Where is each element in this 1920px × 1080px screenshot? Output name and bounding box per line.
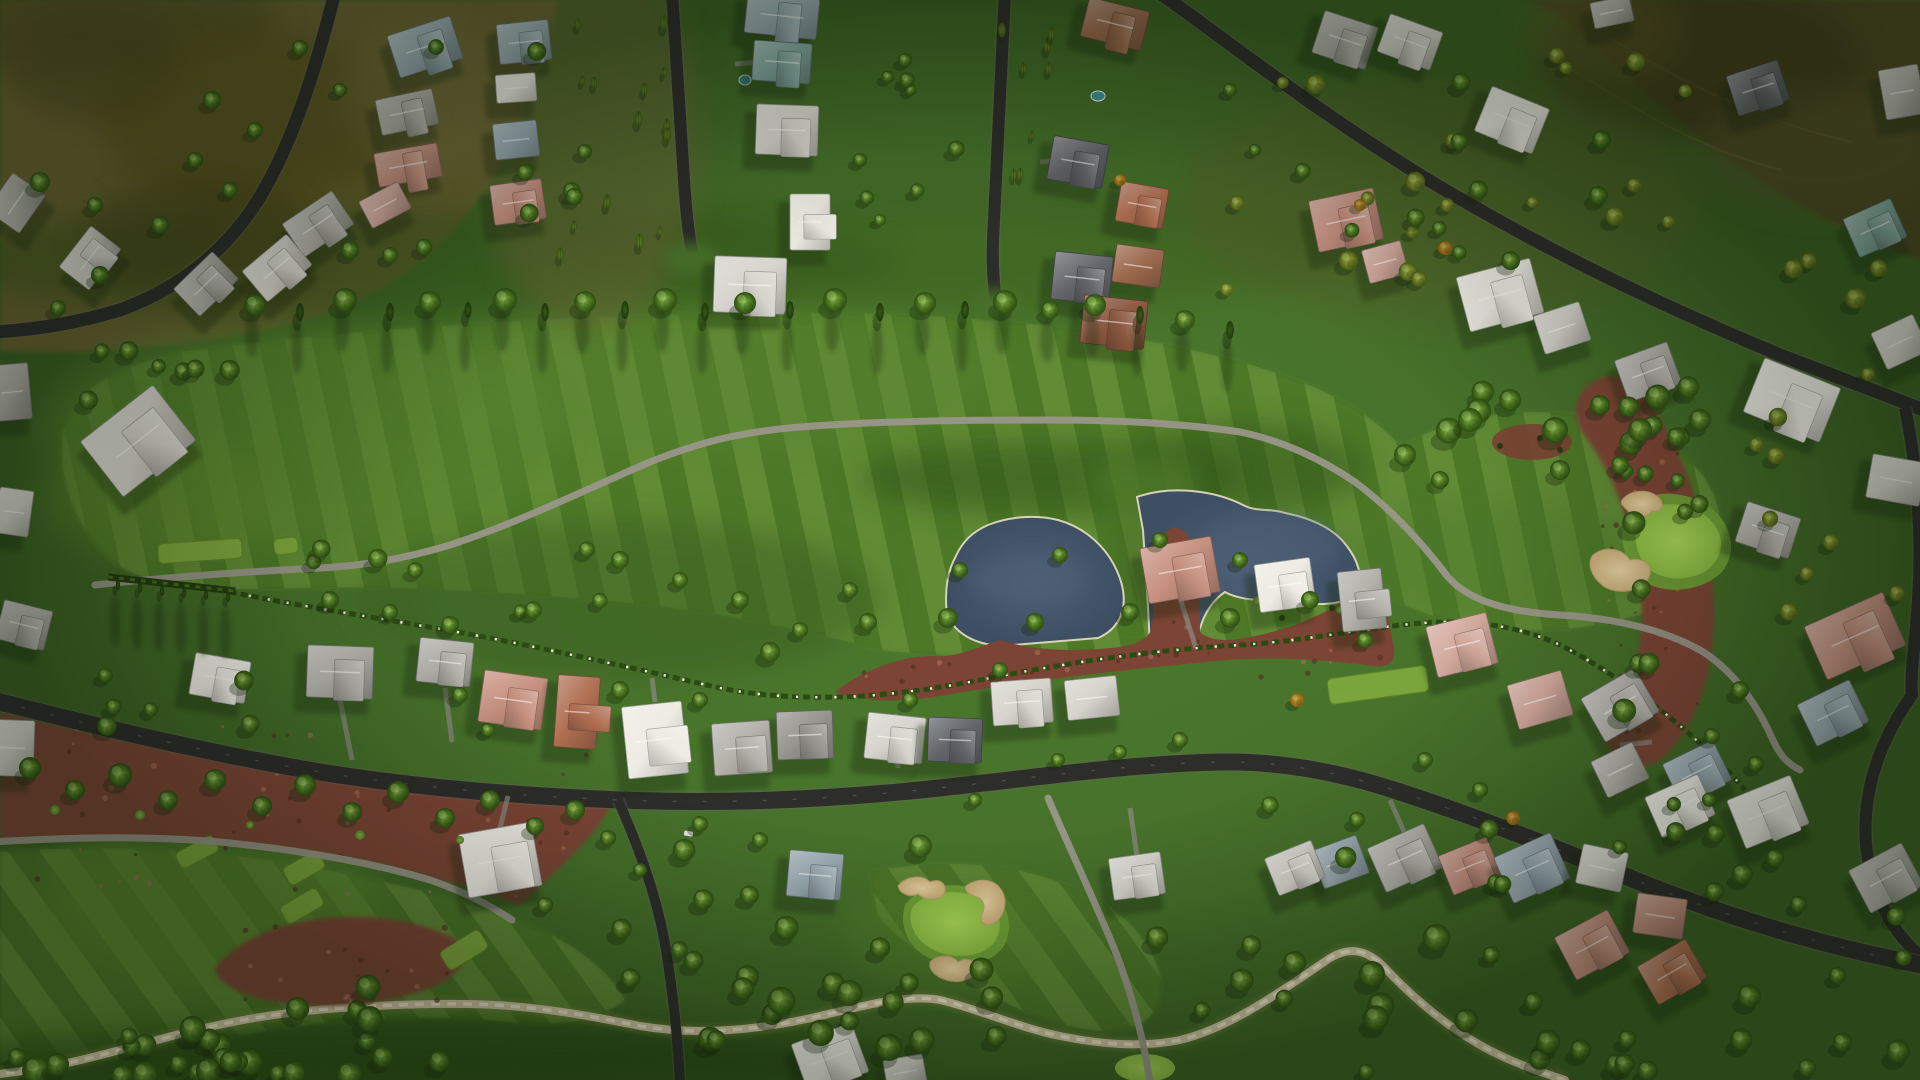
canopy-highlight — [1890, 1042, 1899, 1051]
house-wing — [781, 118, 811, 157]
canopy-shade — [228, 369, 237, 378]
canopy-highlight — [1803, 254, 1810, 261]
canopy-highlight — [1342, 253, 1350, 261]
mulch-texture-dot — [278, 977, 283, 982]
mulch-texture-dot — [67, 749, 72, 754]
shrub — [135, 810, 145, 820]
canopy-highlight — [161, 793, 169, 801]
canopy-highlight — [337, 291, 347, 301]
canopy-highlight — [1551, 49, 1557, 55]
canopy-highlight — [1640, 1063, 1648, 1071]
canopy-highlight — [345, 805, 353, 813]
shrub — [355, 830, 365, 840]
tree-canopy — [138, 583, 142, 593]
house-wing — [1016, 689, 1044, 728]
canopy-highlight — [951, 143, 958, 150]
mulch-texture-dot — [1377, 655, 1383, 661]
canopy-shade — [487, 729, 493, 735]
canopy-shade — [1619, 846, 1626, 853]
tree-canopy — [182, 588, 186, 598]
canopy-highlight — [873, 940, 881, 948]
canopy-highlight — [673, 943, 680, 950]
canopy-shade — [105, 725, 114, 734]
canopy-shade — [1229, 89, 1235, 95]
mulch-texture-dot — [1065, 667, 1070, 672]
canopy-shade — [1867, 373, 1873, 379]
mulch-texture-dot — [434, 997, 440, 1003]
canopy-shade — [1508, 399, 1518, 409]
mulch-texture-dot — [1613, 522, 1619, 528]
roof-ridge — [0, 748, 25, 749]
canopy-shade — [887, 1046, 899, 1058]
mulch-texture-dot — [441, 930, 444, 933]
canopy-highlight — [100, 719, 108, 727]
canopy-highlight — [1546, 420, 1556, 430]
canopy-highlight — [1286, 954, 1295, 963]
canopy-highlight — [1626, 514, 1635, 523]
canopy-highlight — [247, 297, 256, 306]
house-wing — [799, 724, 828, 760]
mulch-texture-dot — [243, 928, 249, 934]
canopy-shade — [381, 1055, 391, 1065]
canopy-highlight — [530, 44, 538, 52]
canopy-highlight — [1409, 211, 1416, 218]
canopy-highlight — [1629, 179, 1635, 185]
canopy-shade — [128, 1035, 136, 1043]
canopy-highlight — [89, 199, 95, 205]
canopy-shade — [414, 569, 421, 576]
canopy-highlight — [359, 978, 369, 988]
canopy-highlight — [614, 553, 621, 560]
canopy-shade — [1488, 828, 1497, 837]
canopy-shade — [1769, 518, 1776, 525]
canopy-highlight — [657, 291, 667, 301]
canopy-highlight — [1223, 611, 1231, 619]
canopy-highlight — [1116, 176, 1121, 181]
canopy-shade — [1896, 592, 1903, 599]
canopy-shade — [1226, 288, 1232, 294]
canopy-shade — [1559, 469, 1568, 478]
house — [915, 717, 983, 779]
canopy-shade — [351, 811, 360, 820]
canopy-shade — [1711, 735, 1718, 742]
canopy-shade — [28, 767, 38, 777]
canopy-highlight — [286, 1064, 295, 1073]
house-wing — [333, 659, 365, 701]
canopy-highlight — [1363, 964, 1374, 975]
house — [739, 39, 813, 100]
canopy-shade — [528, 212, 536, 220]
mulch-texture-dot — [1208, 652, 1210, 654]
house — [1851, 452, 1920, 523]
canopy-highlight — [1708, 884, 1716, 892]
canopy-highlight — [902, 74, 908, 80]
canopy-highlight — [886, 994, 894, 1002]
canopy-highlight — [879, 1037, 890, 1048]
canopy-highlight — [294, 42, 300, 48]
driveway — [652, 678, 655, 702]
canopy-highlight — [1832, 969, 1839, 976]
house-wing — [646, 725, 691, 766]
canopy-highlight — [1455, 75, 1463, 83]
mulch-texture-dot — [308, 733, 313, 738]
canopy-shade — [194, 368, 202, 376]
canopy-highlight — [1485, 948, 1492, 955]
canopy-highlight — [444, 618, 451, 625]
canopy-highlight — [1863, 369, 1869, 375]
canopy-highlight — [1802, 568, 1808, 574]
tree-canopy — [386, 303, 394, 321]
canopy-highlight — [970, 795, 976, 801]
canopy-shade — [1460, 81, 1468, 89]
canopy-highlight — [1462, 411, 1472, 421]
canopy-shade — [101, 350, 108, 357]
canopy-shade — [1651, 424, 1660, 433]
canopy-shade — [682, 849, 692, 859]
canopy-highlight — [27, 1060, 39, 1072]
canopy-shade — [1714, 832, 1723, 841]
mulch-texture-dot — [864, 674, 868, 678]
canopy-shade — [1439, 479, 1447, 487]
mulch-texture-dot — [1329, 661, 1332, 664]
canopy-highlight — [1442, 200, 1448, 206]
canopy-shade — [1599, 404, 1608, 413]
canopy-highlight — [1124, 605, 1131, 612]
mulch-texture-dot — [385, 969, 389, 973]
canopy-highlight — [1233, 972, 1242, 981]
canopy-highlight — [1635, 582, 1643, 590]
canopy-highlight — [244, 717, 252, 725]
canopy-highlight — [1278, 78, 1283, 83]
canopy-highlight — [123, 1030, 130, 1037]
canopy-highlight — [422, 294, 431, 303]
tree-canopy — [701, 303, 709, 321]
canopy-highlight — [390, 784, 399, 793]
canopy-shade — [1902, 957, 1909, 964]
canopy-highlight — [1419, 754, 1425, 760]
mulch-texture-dot — [355, 790, 360, 795]
canopy-highlight — [1642, 655, 1650, 663]
canopy-shade — [1057, 759, 1063, 765]
canopy-highlight — [1801, 1061, 1808, 1068]
canopy-highlight — [122, 344, 130, 352]
canopy-highlight — [529, 819, 536, 826]
canopy-shade — [1446, 204, 1452, 210]
canopy-shade — [1481, 390, 1491, 400]
canopy-shade — [1156, 936, 1166, 946]
mulch-texture-dot — [564, 830, 569, 835]
canopy-shade — [444, 817, 453, 826]
canopy-highlight — [1704, 794, 1710, 800]
tree-canopy — [1226, 321, 1234, 339]
canopy-shade — [167, 799, 176, 808]
tree-canopy — [204, 590, 208, 600]
canopy-shade — [1579, 1049, 1588, 1058]
canopy-highlight — [1669, 825, 1677, 833]
mulch-texture-dot — [1652, 605, 1657, 610]
canopy-shade — [586, 549, 593, 556]
canopy-shade — [639, 869, 645, 875]
canopy-shade — [1638, 429, 1649, 440]
canopy-shade — [1677, 480, 1683, 486]
canopy-shade — [16, 1056, 24, 1064]
canopy-highlight — [825, 975, 834, 984]
canopy-highlight — [1764, 513, 1770, 519]
canopy-highlight — [1679, 506, 1685, 512]
canopy-highlight — [49, 1056, 58, 1065]
canopy-highlight — [674, 574, 680, 580]
mulch-texture-dot — [134, 853, 137, 856]
canopy-shade — [1647, 662, 1656, 671]
mulch-texture-dot — [561, 846, 565, 850]
canopy-highlight — [743, 888, 751, 896]
canopy-highlight — [1733, 1031, 1742, 1040]
canopy-shade — [1634, 60, 1642, 68]
canopy-highlight — [223, 1053, 232, 1062]
canopy-highlight — [335, 85, 341, 91]
mulch-texture-dot — [1305, 670, 1310, 675]
canopy-shade — [1836, 974, 1844, 982]
canopy-highlight — [1502, 392, 1511, 401]
shrub-dark — [1497, 443, 1503, 449]
canopy-shade — [1351, 229, 1358, 236]
canopy-shade — [1600, 139, 1608, 147]
canopy-highlight — [1693, 497, 1700, 504]
canopy-highlight — [1848, 290, 1856, 298]
mulch-texture-dot — [34, 876, 40, 882]
pond-ripple — [972, 554, 1088, 606]
canopy-shade — [296, 1007, 306, 1017]
canopy-shade — [1747, 995, 1758, 1006]
house — [1128, 536, 1223, 621]
canopy-highlight — [1741, 987, 1750, 996]
canopy-highlight — [1458, 1012, 1467, 1021]
canopy-highlight — [844, 584, 850, 590]
canopy-highlight — [1304, 593, 1311, 600]
canopy-highlight — [11, 1050, 18, 1057]
canopy-shade — [535, 50, 544, 59]
canopy-shade — [1774, 857, 1782, 865]
canopy-shade — [1356, 819, 1363, 826]
mulch-texture-dot — [445, 971, 449, 975]
canopy-shade — [909, 699, 916, 706]
canopy-highlight — [223, 362, 231, 370]
canopy-highlight — [1632, 421, 1642, 431]
canopy-shade — [1179, 739, 1186, 746]
canopy-highlight — [1244, 938, 1252, 946]
mulch-texture-dot — [98, 884, 103, 889]
canopy-highlight — [1825, 536, 1832, 543]
canopy-highlight — [375, 1049, 384, 1058]
canopy-shade — [339, 89, 345, 95]
canopy-shade — [678, 949, 686, 957]
canopy-shade — [1254, 149, 1259, 154]
canopy-shade — [303, 784, 313, 794]
canopy-highlight — [843, 1014, 851, 1022]
canopy-highlight — [735, 980, 744, 989]
canopy-highlight — [954, 564, 960, 570]
canopy-highlight — [1787, 261, 1795, 269]
canopy-highlight — [1264, 799, 1271, 806]
canopy-highlight — [1361, 1066, 1367, 1072]
canopy-shade — [1684, 90, 1690, 96]
canopy-highlight — [249, 124, 255, 130]
canopy-shade — [213, 779, 223, 789]
canopy-highlight — [900, 55, 906, 61]
canopy-shade — [699, 699, 706, 706]
mulch-texture-dot — [344, 994, 350, 1000]
mulch-texture-dot — [261, 787, 266, 792]
canopy-shade — [544, 904, 551, 911]
canopy-shade — [112, 706, 119, 713]
canopy-shade — [1687, 386, 1697, 396]
mulch-texture-dot — [346, 892, 350, 896]
tree-canopy — [1136, 306, 1144, 324]
canopy-highlight — [1440, 243, 1446, 249]
canopy-shade — [947, 617, 956, 626]
tree-canopy — [961, 301, 969, 319]
mulch-texture-dot — [296, 818, 301, 823]
canopy-highlight — [763, 645, 771, 653]
canopy-highlight — [340, 1065, 350, 1075]
canopy-shade — [1806, 1067, 1814, 1075]
canopy-shade — [904, 59, 910, 65]
house — [850, 711, 926, 780]
canopy-highlight — [483, 725, 489, 731]
canopy-highlight — [676, 842, 685, 851]
canopy-highlight — [1472, 183, 1480, 191]
mulch-texture-dot — [221, 725, 224, 728]
canopy-shade — [1293, 961, 1303, 971]
canopy-shade — [1435, 936, 1447, 948]
canopy-highlight — [568, 190, 575, 197]
canopy-highlight — [108, 701, 114, 707]
canopy-highlight — [696, 892, 704, 900]
canopy-highlight — [1527, 995, 1534, 1002]
canopy-shade — [396, 791, 406, 801]
mulch-texture-dot — [948, 662, 952, 666]
canopy-shade — [741, 987, 751, 997]
mulch-texture-dot — [232, 830, 236, 834]
canopy-shade — [887, 76, 893, 82]
canopy-shade — [1623, 1063, 1632, 1072]
canopy-highlight — [912, 185, 918, 191]
shrub — [50, 805, 60, 815]
canopy-highlight — [438, 811, 446, 819]
canopy-highlight — [1397, 447, 1406, 456]
canopy-shade — [607, 837, 614, 844]
mulch-texture-dot — [328, 950, 331, 953]
canopy-shade — [1698, 419, 1708, 429]
canopy-highlight — [1898, 951, 1905, 958]
canopy-highlight — [1475, 383, 1484, 392]
house — [0, 363, 34, 439]
tree-canopy — [226, 592, 230, 602]
canopy-highlight — [1528, 198, 1533, 203]
canopy-highlight — [189, 362, 196, 369]
house-wing — [438, 651, 467, 687]
mulch-texture-dot — [243, 997, 247, 1001]
canopy-shade — [1755, 444, 1762, 451]
canopy-shade — [1250, 944, 1259, 953]
canopy-highlight — [97, 345, 103, 351]
canopy-shade — [692, 959, 701, 968]
house-wing — [887, 727, 917, 766]
canopy-shade — [435, 46, 442, 53]
canopy-shade — [249, 723, 257, 731]
canopy-shade — [1119, 751, 1125, 757]
canopy-highlight — [577, 294, 586, 303]
canopy-shade — [779, 999, 792, 1012]
house-wing — [568, 703, 611, 732]
canopy-shade — [503, 299, 514, 310]
tree-long-shadow — [198, 605, 209, 657]
canopy-shade — [366, 1040, 374, 1048]
canopy-shade — [1364, 639, 1371, 646]
canopy-highlight — [1782, 605, 1789, 612]
canopy-shade — [1414, 217, 1422, 225]
canopy-shade — [1119, 179, 1124, 184]
canopy-shade — [1640, 588, 1649, 597]
mulch-texture-dot — [248, 964, 253, 969]
canopy-highlight — [1292, 695, 1298, 701]
canopy-shade — [261, 805, 270, 814]
mulch-texture-dot — [102, 795, 108, 801]
canopy-shade — [1003, 301, 1014, 312]
canopy-highlight — [1673, 475, 1679, 481]
canopy-highlight — [172, 1057, 179, 1064]
canopy-shade — [1626, 1038, 1634, 1046]
canopy-shade — [1708, 799, 1714, 805]
canopy-highlight — [1669, 799, 1675, 805]
canopy-shade — [1034, 621, 1042, 629]
tree-long-shadow — [220, 607, 231, 659]
shrub-canopy — [246, 821, 254, 829]
canopy-shade — [1755, 763, 1762, 770]
mulch-texture-dot — [1301, 660, 1306, 665]
canopy-highlight — [1371, 996, 1382, 1007]
shrub-canopy — [355, 830, 365, 840]
canopy-highlight — [1692, 412, 1701, 421]
canopy-highlight — [1427, 927, 1438, 938]
mulch-texture-dot — [119, 880, 122, 883]
canopy-highlight — [1363, 193, 1369, 199]
canopy-shade — [1296, 699, 1302, 705]
mulch-texture-dot — [1157, 654, 1160, 657]
canopy-highlight — [146, 704, 152, 710]
canopy-shade — [849, 589, 856, 596]
canopy-highlight — [883, 72, 888, 77]
canopy-highlight — [771, 990, 782, 1001]
canopy-shade — [1619, 464, 1627, 472]
house-wing — [1355, 589, 1392, 620]
canopy-highlight — [1356, 201, 1361, 206]
canopy-shade — [389, 611, 396, 618]
canopy-shade — [1359, 204, 1364, 209]
canopy-shade — [1512, 817, 1518, 823]
mulch-texture-dot — [538, 840, 542, 844]
canopy-shade — [74, 789, 83, 798]
canopy-highlight — [739, 968, 748, 977]
canopy-shade — [1468, 419, 1479, 430]
canopy-shade — [211, 99, 219, 107]
canopy-highlight — [1615, 842, 1621, 848]
mulch-texture-dot — [561, 773, 564, 776]
canopy-shade — [57, 307, 64, 314]
canopy-shade — [1673, 803, 1679, 809]
canopy-shade — [1698, 503, 1706, 511]
canopy-shade — [799, 629, 806, 636]
